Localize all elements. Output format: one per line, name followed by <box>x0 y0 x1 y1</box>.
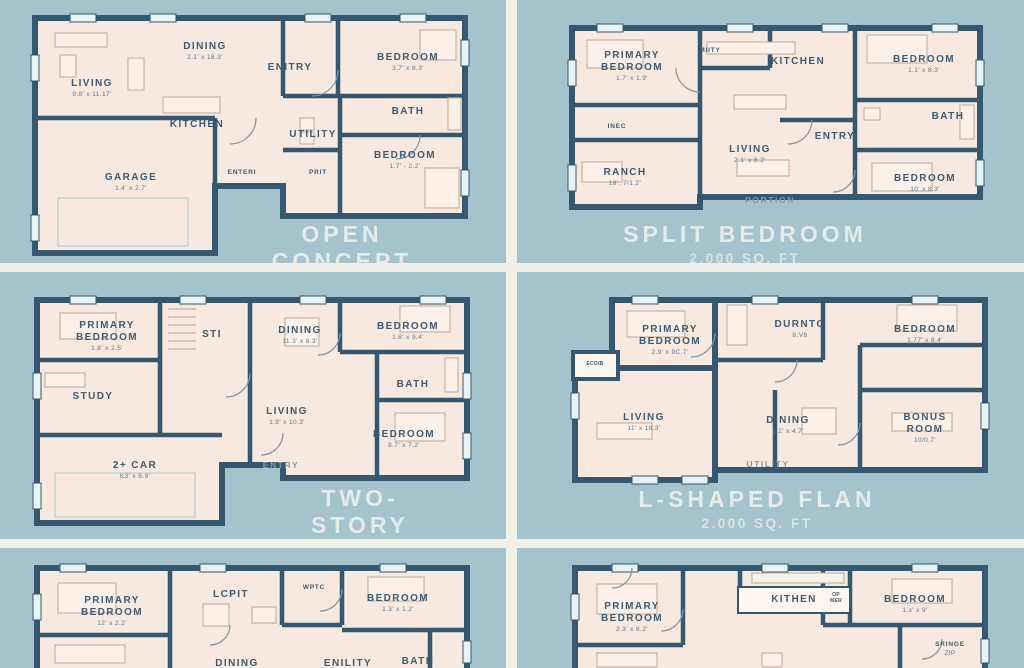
caption-open-concept: OPEN CONCEPT 2,000 SQ. FT <box>257 221 427 263</box>
plan-sqft: 2.000 SQ. FT <box>638 516 875 531</box>
plan-sqft: 2,000 SQ. FT <box>623 251 867 263</box>
cell-l-shaped: PRIMARY BEDROOM2.9' x 9C.7' ECOIB DURNTO… <box>512 273 1024 539</box>
plan-title: L-SHAPED FLAN <box>638 486 875 513</box>
plan-title: OPEN CONCEPT <box>257 221 427 263</box>
cell-split-bedroom: PRIMARY BEDROOM1.7' x 1.9' MIITY KITCHEN… <box>512 0 1024 263</box>
floorplan-poster: LIVING9.8' x 11.17' DINING2.1' x 18.3' K… <box>0 0 1024 668</box>
vertical-divider <box>506 0 517 668</box>
cell-open-concept: LIVING9.8' x 11.17' DINING2.1' x 18.3' K… <box>0 0 512 263</box>
caption-split-bedroom: SPLIT BEDROOM 2,000 SQ. FT <box>623 221 867 263</box>
cell-two-story: PRIMARY BEDROOM1.8' x 2.5' STI DINING11.… <box>0 273 512 539</box>
plan-title: SPLIT BEDROOM <box>623 221 867 248</box>
horizontal-divider-2 <box>0 539 1024 548</box>
cell-bottom-left: PRIMARY BEDROOM12' x 2.2' LCPIT WPTC BED… <box>0 549 512 668</box>
caption-l-shaped: L-SHAPED FLAN 2.000 SQ. FT <box>638 486 875 531</box>
plan-title: TWO-STORY <box>284 485 436 539</box>
bottom-right-plan-drawing <box>512 549 1024 668</box>
horizontal-divider-1 <box>0 263 1024 272</box>
open-concept-plan-drawing <box>0 0 512 263</box>
cell-bottom-right: PRIMARY BEDROOM2.3' x 8.2' KITHEN OP MER… <box>512 549 1024 668</box>
bottom-left-plan-drawing <box>0 549 512 668</box>
caption-two-story: TWO-STORY 2,000 SQ. FT <box>284 485 436 539</box>
